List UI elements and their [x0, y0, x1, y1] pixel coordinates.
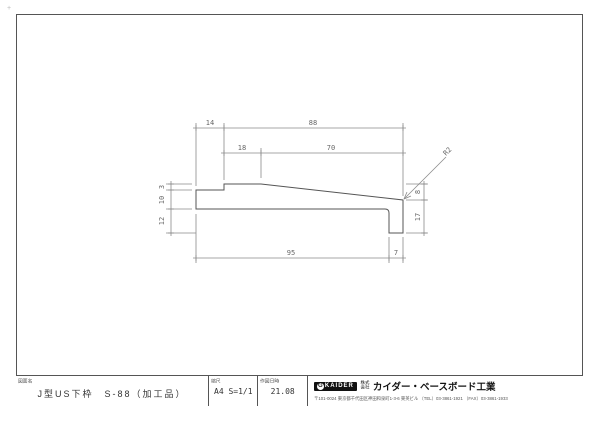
- kaider-logo-text: KAIDER: [325, 383, 354, 389]
- leader-line: [404, 157, 446, 199]
- dim-bottom-95: 95: [287, 249, 295, 257]
- corp-prefix-line2: 会社: [360, 386, 369, 391]
- title-block: 図面名 J型US下枠 S-88（加工品） 縮尺 A4 S=1/1 作図日時 21…: [16, 375, 583, 406]
- scale-label: 縮尺: [211, 377, 221, 384]
- dim-left-3: 3: [158, 185, 166, 189]
- drawing-name-cell: 図面名 J型US下枠 S-88（加工品）: [16, 376, 208, 406]
- drawing-name-value: J型US下枠 S-88（加工品）: [16, 387, 208, 400]
- date-label: 作図日時: [260, 377, 279, 384]
- dim-col-right: [406, 181, 428, 236]
- dim-top-14: 14: [206, 119, 214, 127]
- dim-row2-70: 70: [327, 144, 335, 152]
- company-cell: G KAIDER 株式 会社 カイダー・ベースボード工業 〒101-0024 東…: [307, 376, 583, 406]
- dim-row-2: [221, 148, 406, 178]
- cad-drawing-canvas: 14 88 18 70 3 10 12 8 17: [0, 0, 600, 424]
- dim-right-8: 8: [414, 190, 422, 194]
- dim-left-10: 10: [158, 196, 166, 204]
- company-name: カイダー・ベースボード工業: [373, 379, 496, 393]
- leader-label-r2: R2: [442, 146, 454, 158]
- corp-prefix: 株式 会社: [360, 382, 369, 391]
- kaider-logo-mark-icon: G: [317, 383, 324, 390]
- dim-bottom-7: 7: [394, 249, 398, 257]
- profile-outline: [196, 184, 403, 233]
- date-cell: 作図日時 21.08: [257, 376, 306, 406]
- dim-row-bottom: [193, 214, 406, 263]
- kaider-logo: G KAIDER: [314, 382, 357, 391]
- scale-value: A4 S=1/1: [209, 387, 257, 396]
- drawing-name-label: 図面名: [18, 377, 32, 384]
- dim-left-12: 12: [158, 217, 166, 225]
- company-row: G KAIDER 株式 会社 カイダー・ベースボード工業: [314, 379, 583, 393]
- date-value: 21.08: [258, 387, 306, 396]
- dim-right-17: 17: [414, 213, 422, 221]
- dim-top-88: 88: [309, 119, 317, 127]
- company-address: 〒101-0024 東京都千代田区神田和泉町1-3-6 東英ビル （TEL）03…: [314, 395, 508, 401]
- dim-row2-18: 18: [238, 144, 246, 152]
- dim-col-left: [166, 181, 196, 236]
- dim-row-top: [193, 123, 406, 196]
- scale-cell: 縮尺 A4 S=1/1: [208, 376, 257, 406]
